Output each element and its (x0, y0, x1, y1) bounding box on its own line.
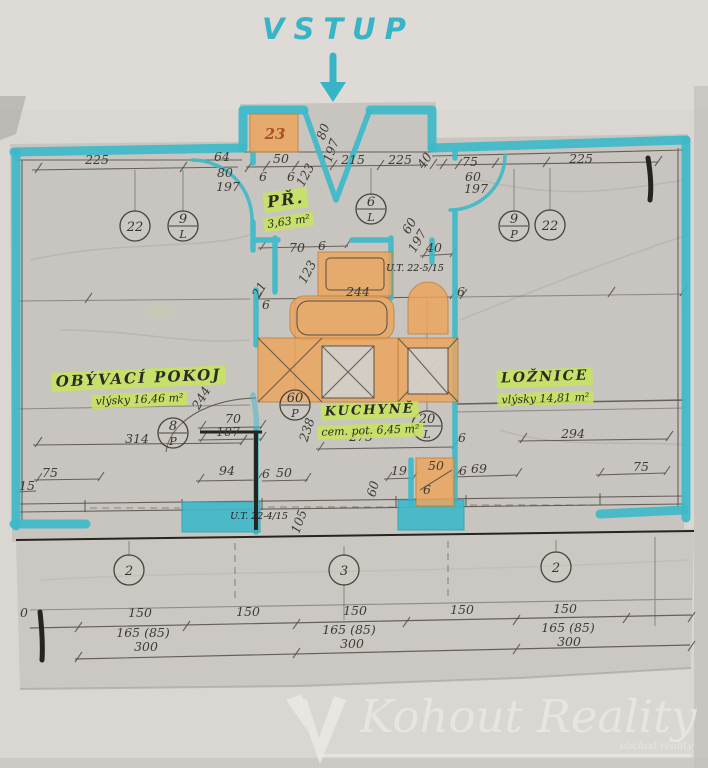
dimension-label: 225 (387, 152, 412, 167)
dimension-label: 225 (84, 152, 109, 167)
dimension-label: 165 (85) (116, 625, 170, 640)
dimension-label: 50 (428, 458, 444, 473)
room-floor-area: vlýsky 14,81 m² (497, 390, 593, 407)
dimension-label: 23 (264, 125, 286, 143)
marker-number: 2 (124, 564, 133, 579)
marker-letter: L (178, 228, 186, 241)
position-marker: 2 (114, 555, 144, 585)
marker-letter: P (290, 407, 299, 420)
watermark-rule (318, 754, 692, 757)
floor-plan-photo: 2256480197506612321522540756019722580197… (0, 0, 708, 768)
position-marker: 8P (158, 418, 188, 448)
watermark-tagline: obchod reality (620, 741, 693, 752)
marker-number: 3 (340, 564, 348, 579)
dimension-label: 314 (125, 431, 149, 446)
dimension-label: 70 (289, 240, 305, 255)
entrance-label: VSTUP (262, 12, 415, 46)
dimension-label: 6 (458, 430, 466, 445)
marker-number: 22 (126, 220, 144, 235)
pen-stroke (40, 612, 42, 660)
floor-note: vlýsky (95, 393, 130, 407)
dimension-label: 40 (425, 240, 442, 255)
dimension-label: 197 (464, 181, 488, 196)
dimension-label: 6 (423, 482, 431, 497)
position-marker: 22 (120, 211, 150, 241)
dimension-label: 19 (391, 463, 407, 478)
dimension-label: 80 (217, 165, 233, 180)
marker-letter: P (509, 228, 518, 241)
dimension-label: 150 (450, 602, 474, 617)
note-label: U.T. 22-5/15 (386, 263, 444, 274)
position-marker: 2 (541, 552, 571, 582)
dimension-label: 150 (236, 604, 260, 619)
dimension-label: 6 (459, 463, 467, 478)
dimension-label: 50 (276, 465, 292, 480)
dimension-label: 165 (85) (541, 620, 595, 635)
dimension-label: 165 (85) (322, 622, 376, 637)
dimension-label: 75 (42, 465, 58, 480)
dimension-label: 244 (345, 284, 370, 299)
room-name: LOŽNICE (497, 367, 593, 388)
dimension-label: 0 (20, 605, 28, 620)
dimension-label: 6 (262, 297, 270, 312)
floor-note: cem. pot. (321, 424, 373, 439)
dimension-label: 300 (134, 639, 158, 654)
marker-number: 6 (367, 195, 375, 210)
dimension-label: 225 (568, 151, 593, 166)
dimension-label: 50 (273, 151, 289, 166)
position-marker: 9L (168, 211, 198, 241)
room-area: 6,45 m² (376, 423, 419, 437)
room-label-kitchen: KUCHYNĚ cem. pot. 6,45 m² (311, 397, 428, 441)
marker-number: 22 (541, 219, 559, 234)
dimension-label: 300 (557, 634, 581, 649)
dimension-label: 6 (318, 238, 326, 253)
position-marker: 22 (535, 210, 565, 240)
room-label-bedroom: LOŽNICE vlýsky 14,81 m² (489, 364, 600, 408)
room-floor-area: vlýsky 16,46 m² (91, 391, 187, 409)
dimension-label: 69 (471, 461, 487, 476)
dimension-label: 150 (343, 603, 367, 618)
marker-letter: L (366, 211, 374, 224)
room-floor-area: cem. pot. 6,45 m² (317, 422, 423, 439)
room-area: 16,46 m² (133, 391, 183, 406)
dimension-label: 300 (340, 636, 364, 651)
dimension-label: 6 (457, 284, 465, 299)
marker-number: 60 (287, 391, 304, 406)
toilet (408, 282, 448, 334)
position-marker: 3 (329, 555, 359, 585)
dimension-label: 294 (560, 426, 585, 441)
dimension-label: 150 (553, 601, 577, 616)
dimension-label: 94 (219, 463, 235, 478)
dimension-label: 15 (19, 478, 35, 493)
paper-corner-shadow (0, 96, 26, 140)
marker-number: 8 (169, 419, 177, 434)
marker-number: 9 (179, 212, 187, 227)
marker-number: 9 (510, 212, 518, 227)
dimension-label: 107 (216, 424, 240, 439)
marker-number: 2 (551, 561, 560, 576)
dimension-label: 215 (340, 152, 365, 167)
dimension-label: 75 (633, 459, 649, 474)
position-marker: 9P (499, 211, 529, 241)
dimension-label: 75 (462, 154, 478, 169)
position-marker: 6L (356, 194, 386, 224)
dimension-label: 6 (262, 466, 270, 481)
dimension-label: 197 (216, 179, 240, 194)
dimension-label: 150 (128, 605, 152, 620)
room-name: KUCHYNĚ (321, 401, 419, 421)
note-label: U.T. 22-4/15 (230, 511, 288, 522)
dimension-label: 64 (214, 149, 230, 164)
dimension-label: 6 (259, 169, 267, 184)
room-area: 14,81 m² (539, 390, 589, 405)
bathtub (290, 296, 394, 340)
floor-note: vlýsky (501, 392, 536, 406)
watermark: Kohout Reality obchod reality (0, 690, 708, 768)
marker-letter: P (168, 435, 177, 448)
pen-stroke (648, 158, 651, 200)
watermark-brand: Kohout Reality (360, 690, 697, 743)
position-marker: 60P (280, 390, 310, 420)
